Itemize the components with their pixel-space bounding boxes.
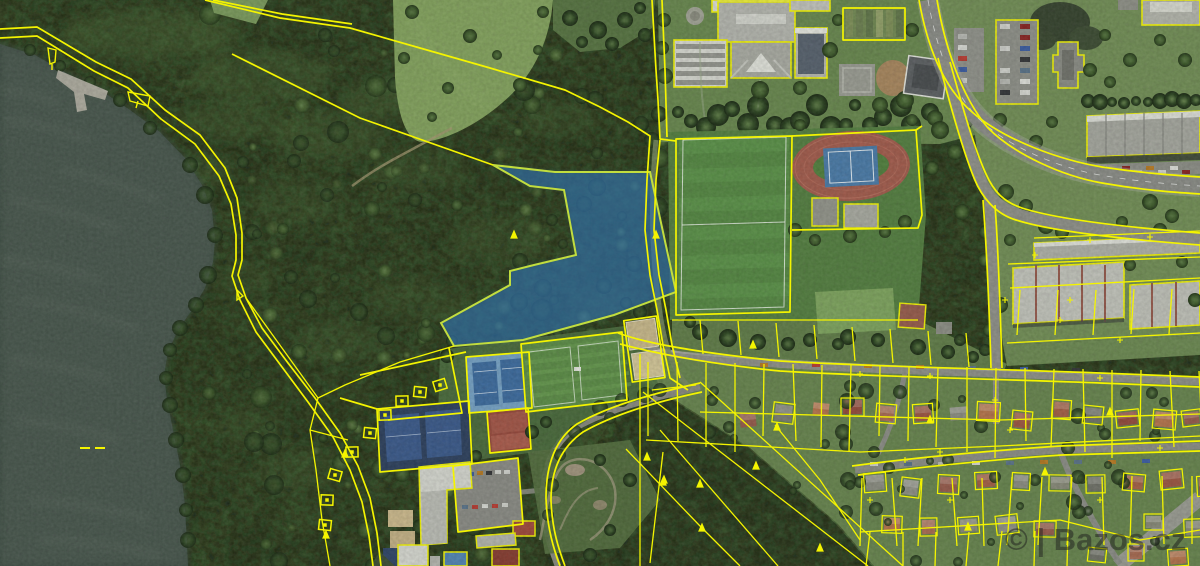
svg-text:© | Bazos.cz: © | Bazos.cz — [1005, 522, 1186, 557]
